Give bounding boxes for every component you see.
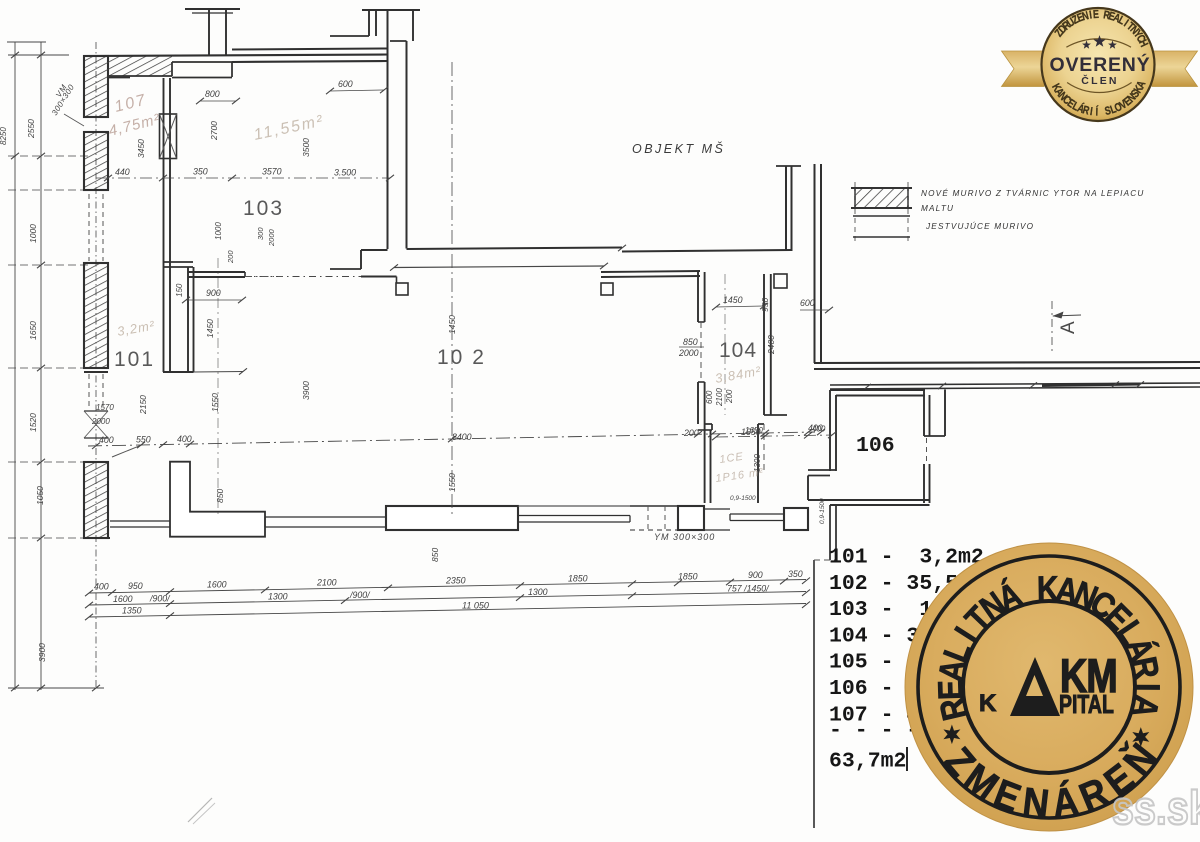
svg-text:1650: 1650 [28, 321, 38, 340]
svg-text:63,7m2: 63,7m2 [829, 750, 906, 774]
svg-text:10 2: 10 2 [437, 346, 486, 369]
svg-text:440: 440 [115, 167, 130, 177]
svg-text:ČLEN: ČLEN [1081, 74, 1118, 87]
svg-text:N: N [1020, 780, 1051, 827]
svg-text:400: 400 [177, 434, 192, 444]
svg-text:900: 900 [206, 288, 221, 298]
svg-text:PITAL: PITAL [1059, 689, 1114, 718]
svg-text:850: 850 [683, 337, 698, 347]
svg-text:11 050: 11 050 [462, 600, 489, 610]
svg-text:850: 850 [430, 548, 440, 562]
svg-text:2350: 2350 [445, 575, 466, 585]
svg-text:757 /1450/: 757 /1450/ [727, 584, 770, 594]
svg-text:104: 104 [719, 339, 757, 362]
svg-text:2550: 2550 [26, 119, 36, 139]
svg-text:K: K [979, 690, 997, 717]
svg-text:101 - 3,2m2: 101 - 3,2m2 [829, 546, 984, 570]
svg-text:A: A [1058, 321, 1079, 334]
svg-text:400: 400 [94, 582, 109, 592]
svg-text:1350: 1350 [122, 606, 142, 616]
svg-text:1850: 1850 [568, 573, 588, 583]
svg-text:103: 103 [243, 197, 284, 220]
svg-text:3900: 3900 [301, 381, 311, 400]
svg-text:1600: 1600 [207, 580, 227, 590]
svg-text:2150: 2150 [138, 395, 148, 415]
svg-text:E: E [1093, 9, 1100, 22]
svg-text:3500: 3500 [301, 138, 311, 157]
svg-text:2000: 2000 [678, 348, 699, 358]
svg-text:350: 350 [788, 569, 803, 579]
svg-text:950: 950 [760, 298, 770, 312]
svg-text:8400: 8400 [452, 432, 472, 442]
svg-text:550: 550 [136, 435, 151, 445]
svg-text:400: 400 [99, 435, 114, 445]
svg-text:150: 150 [175, 283, 184, 297]
svg-text:1300: 1300 [528, 587, 548, 597]
svg-text:/900/: /900/ [349, 590, 371, 600]
svg-text:3,2m²: 3,2m² [116, 318, 156, 339]
svg-text:0,9-1500: 0,9-1500 [819, 498, 826, 524]
svg-text:600: 600 [705, 390, 714, 404]
svg-text:300: 300 [256, 227, 265, 240]
svg-text:900: 900 [748, 570, 763, 580]
svg-text:MALTU: MALTU [921, 204, 954, 213]
svg-text:1600: 1600 [113, 594, 133, 604]
svg-text:NOVÉ MURIVO Z TVÁRNIC YTOR NA: NOVÉ MURIVO Z TVÁRNIC YTOR NA LEPIACU [921, 188, 1145, 198]
svg-text:3570: 3570 [262, 167, 282, 177]
svg-text:1450: 1450 [205, 319, 215, 338]
svg-text:950: 950 [128, 581, 143, 591]
svg-text:600: 600 [800, 298, 815, 308]
svg-text:4,75m²: 4,75m² [107, 111, 162, 140]
svg-text:101: 101 [114, 348, 155, 371]
svg-text:1520: 1520 [28, 413, 38, 432]
svg-text:3,84m²: 3,84m² [714, 363, 762, 386]
svg-text:OBJEKT MŠ: OBJEKT MŠ [632, 141, 725, 156]
svg-text:1300: 1300 [268, 591, 288, 601]
svg-text:2400: 2400 [766, 335, 776, 355]
svg-text:JESTVUJÚCE MURIVO: JESTVUJÚCE MURIVO [925, 221, 1034, 231]
svg-text:1850: 1850 [678, 571, 698, 581]
svg-text:800: 800 [205, 89, 220, 99]
svg-text:8250: 8250 [0, 127, 8, 145]
svg-text:OVERENÝ: OVERENÝ [1050, 52, 1151, 76]
svg-text:200: 200 [226, 250, 235, 264]
svg-text:1050: 1050 [35, 486, 45, 505]
svg-text:YM 300×300: YM 300×300 [654, 532, 715, 542]
svg-text:3.500: 3.500 [334, 168, 356, 178]
svg-text:1550: 1550 [210, 393, 220, 412]
svg-text:3900: 3900 [37, 643, 47, 662]
svg-text:11,55m²: 11,55m² [252, 112, 325, 143]
svg-text:106: 106 [856, 434, 895, 458]
svg-text:2100: 2100 [316, 578, 337, 588]
svg-text:1650: 1650 [745, 426, 763, 435]
svg-text:ss.sk: ss.sk [1112, 783, 1200, 835]
svg-text:1000: 1000 [214, 222, 223, 240]
svg-text:200: 200 [683, 428, 699, 438]
svg-text:1570: 1570 [96, 403, 114, 412]
svg-text:0,9-1500: 0,9-1500 [730, 495, 756, 502]
svg-text:2700: 2700 [209, 121, 219, 141]
svg-text:/900/: /900/ [149, 593, 171, 603]
svg-text:850: 850 [215, 489, 225, 503]
svg-text:1000: 1000 [28, 224, 38, 243]
svg-text:600: 600 [338, 79, 353, 89]
svg-text:2000: 2000 [267, 228, 276, 247]
svg-text:2100: 2100 [715, 388, 724, 407]
svg-text:400: 400 [812, 425, 826, 434]
svg-text:107: 107 [113, 91, 149, 115]
svg-text:350: 350 [193, 167, 208, 177]
svg-text:1450: 1450 [723, 295, 743, 305]
svg-text:200: 200 [725, 389, 734, 404]
svg-text:2000: 2000 [91, 417, 110, 426]
svg-text:I: I [1128, 683, 1167, 691]
svg-text:1CE: 1CE [719, 451, 745, 466]
svg-text:3450: 3450 [136, 139, 146, 158]
